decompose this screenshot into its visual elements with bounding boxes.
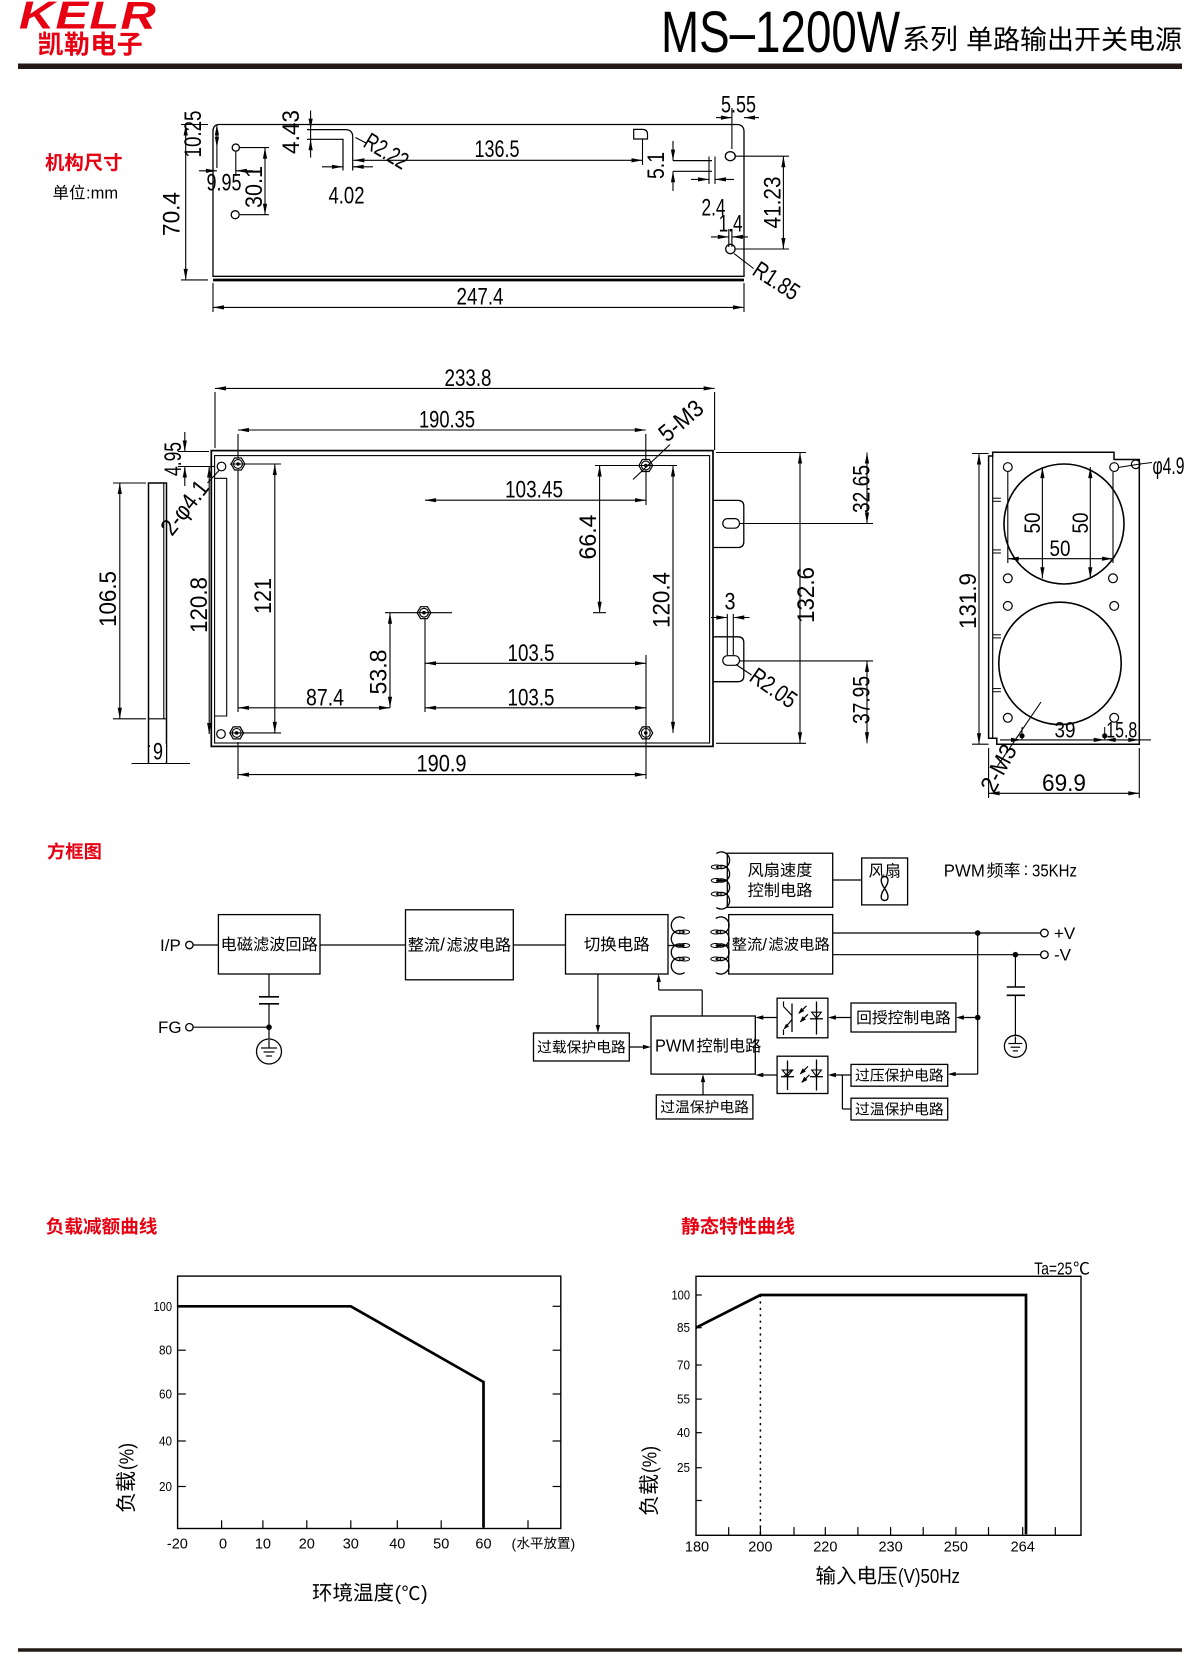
svg-text:50: 50 [1050, 536, 1071, 561]
svg-text:0: 0 [219, 1537, 227, 1553]
svg-text:85: 85 [677, 1320, 690, 1335]
svg-text:20: 20 [159, 1479, 172, 1494]
svg-text:+V: +V [1054, 924, 1076, 943]
svg-text:247.4: 247.4 [457, 284, 504, 311]
svg-text:70.4: 70.4 [159, 192, 186, 236]
svg-text:100: 100 [154, 1299, 173, 1314]
svg-text:264: 264 [1011, 1540, 1035, 1556]
svg-text:1.4: 1.4 [719, 211, 743, 238]
svg-text:30: 30 [343, 1537, 359, 1553]
svg-text:(V)50Hz: (V)50Hz [898, 1565, 960, 1588]
svg-text:(%): (%) [117, 1443, 139, 1470]
svg-text:5.55: 5.55 [721, 92, 756, 119]
svg-text:37.95: 37.95 [849, 676, 876, 724]
svg-text:4.95: 4.95 [160, 442, 187, 476]
svg-text:(: ( [512, 1536, 517, 1552]
svg-text:φ4.9: φ4.9 [1153, 453, 1185, 480]
svg-text:(%): (%) [640, 1446, 662, 1473]
svg-text:5.1: 5.1 [643, 152, 670, 179]
svg-text:66.4: 66.4 [575, 515, 602, 560]
svg-text:200: 200 [748, 1540, 772, 1556]
svg-text:230: 230 [878, 1540, 902, 1556]
svg-text:3: 3 [725, 589, 736, 616]
svg-text:/: / [440, 935, 445, 955]
svg-text:50: 50 [1068, 513, 1093, 534]
svg-text:80: 80 [159, 1343, 172, 1358]
svg-text:FG: FG [158, 1018, 182, 1037]
svg-text:50: 50 [433, 1537, 449, 1553]
svg-text:I/P: I/P [160, 936, 181, 955]
svg-text:190.9: 190.9 [417, 751, 467, 778]
svg-text:120.8: 120.8 [186, 577, 213, 633]
svg-text:55: 55 [677, 1392, 690, 1407]
svg-text:103.45: 103.45 [505, 477, 563, 504]
svg-text:40: 40 [389, 1537, 405, 1553]
svg-text:106.5: 106.5 [95, 571, 122, 627]
svg-text:39: 39 [1055, 718, 1076, 743]
svg-text:20: 20 [299, 1537, 315, 1553]
svg-text:70: 70 [677, 1358, 690, 1373]
svg-text:60: 60 [159, 1387, 172, 1402]
svg-text:4.43: 4.43 [278, 110, 305, 154]
svg-text:Ta=25: Ta=25 [1034, 1259, 1072, 1279]
svg-text:100: 100 [672, 1288, 691, 1303]
svg-text:PWM: PWM [655, 1036, 695, 1056]
svg-text:50: 50 [1020, 513, 1045, 534]
svg-text:40: 40 [159, 1434, 172, 1449]
svg-text:41.23: 41.23 [760, 177, 787, 229]
svg-text:132.6: 132.6 [793, 567, 820, 623]
svg-text:35KHz: 35KHz [1032, 861, 1077, 881]
svg-text:25: 25 [677, 1460, 690, 1475]
svg-text:4.02: 4.02 [329, 183, 365, 210]
svg-text:120.4: 120.4 [649, 572, 676, 628]
svg-text:131.9: 131.9 [955, 573, 982, 629]
svg-text:103.5: 103.5 [508, 640, 555, 667]
svg-text:250: 250 [944, 1540, 968, 1556]
svg-text:KELR: KELR [19, 0, 157, 38]
svg-text:-V: -V [1054, 946, 1072, 965]
svg-text::mm: :mm [86, 185, 118, 203]
svg-text:9: 9 [153, 739, 163, 766]
svg-text:121: 121 [250, 578, 277, 614]
svg-text:136.5: 136.5 [475, 136, 520, 163]
svg-text:69.9: 69.9 [1042, 770, 1086, 797]
svg-text:10: 10 [255, 1537, 271, 1553]
svg-text:/: / [762, 936, 767, 954]
svg-text:32.65: 32.65 [849, 465, 876, 513]
svg-text:15.8: 15.8 [1106, 718, 1137, 743]
svg-text:): ) [571, 1536, 576, 1552]
svg-text:10.25: 10.25 [180, 111, 207, 158]
svg-text:103.5: 103.5 [508, 684, 555, 711]
svg-text:190.35: 190.35 [419, 407, 475, 434]
svg-text::: : [1024, 859, 1029, 879]
svg-text:30.1: 30.1 [241, 166, 268, 208]
svg-text:40: 40 [677, 1425, 690, 1440]
svg-text:-20: -20 [167, 1537, 188, 1553]
svg-text:60: 60 [475, 1537, 491, 1553]
svg-text:220: 220 [813, 1540, 837, 1556]
svg-text:PWM: PWM [944, 861, 985, 881]
svg-text:(: ( [395, 1583, 402, 1605]
svg-text:87.4: 87.4 [306, 684, 344, 711]
svg-text:MS–1200W: MS–1200W [661, 0, 900, 65]
svg-text:9.95: 9.95 [207, 170, 242, 197]
svg-text:): ) [421, 1583, 428, 1605]
svg-text:53.8: 53.8 [366, 650, 393, 695]
svg-text:233.8: 233.8 [445, 365, 492, 392]
svg-text:180: 180 [685, 1540, 709, 1556]
